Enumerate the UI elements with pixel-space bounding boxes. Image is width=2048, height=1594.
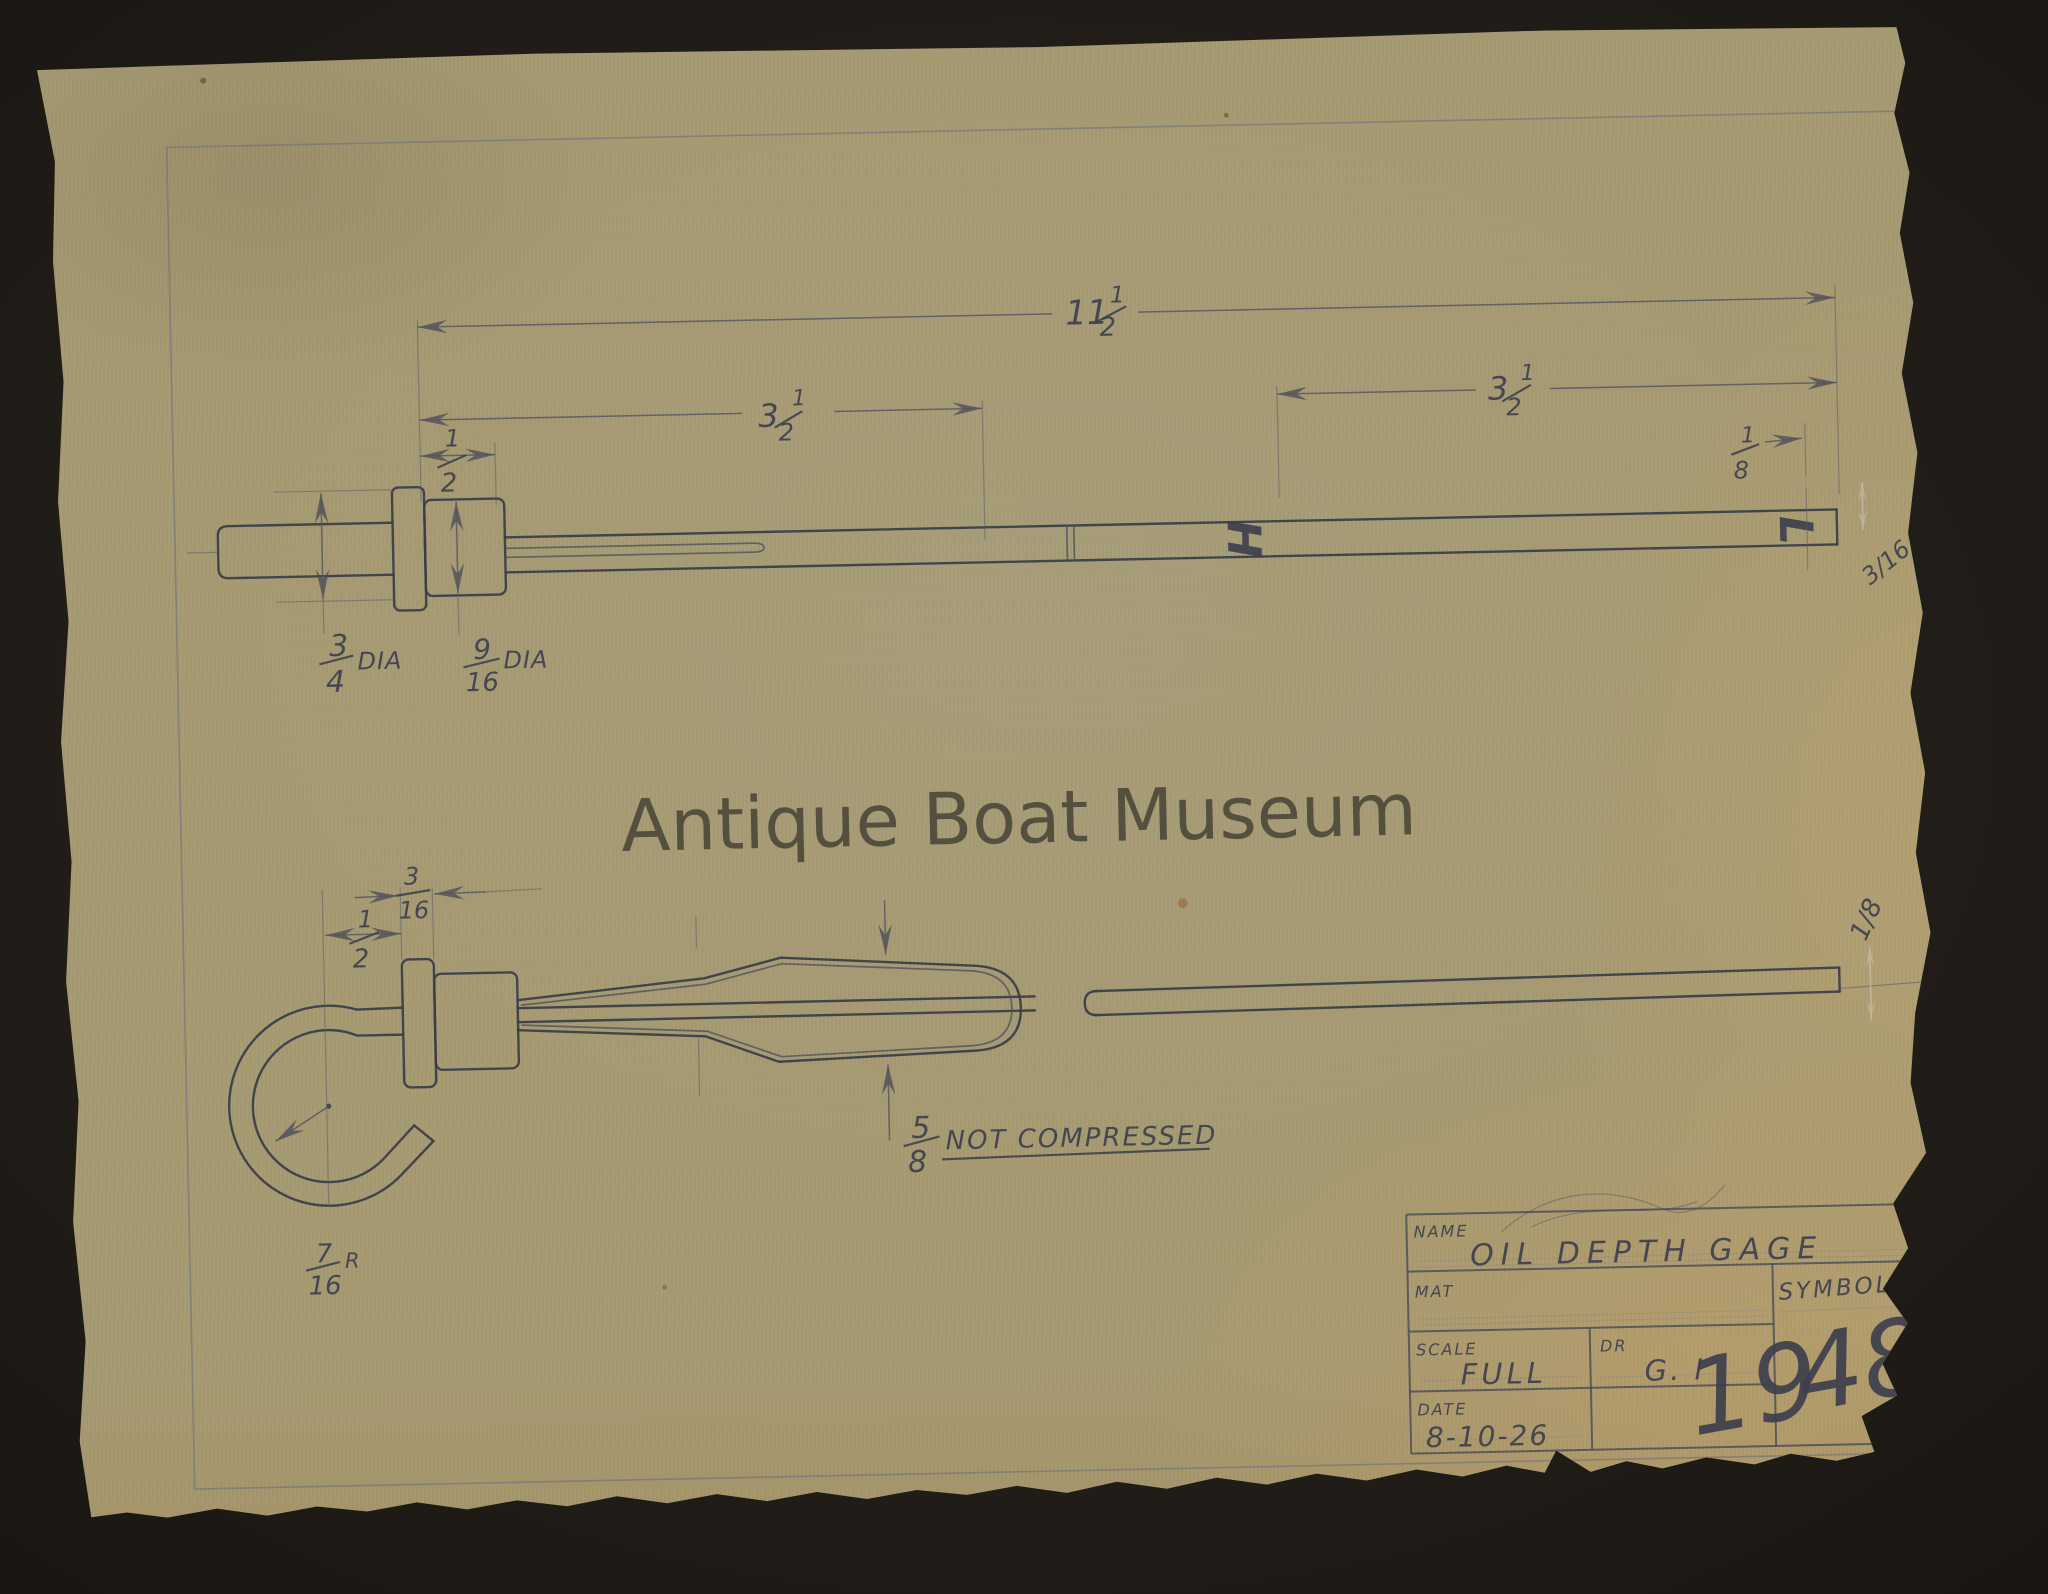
dim-hex-dia: 9 16 DIA xyxy=(456,500,549,699)
svg-text:3: 3 xyxy=(758,397,779,435)
svg-text:2: 2 xyxy=(778,418,794,446)
dim-overall-length: 11 1 2 xyxy=(417,267,1836,357)
svg-text:1: 1 xyxy=(792,386,807,411)
dim-spring: 5 8 NOT COMPRESSED xyxy=(885,894,1219,1181)
top-view: H L 11 1 xyxy=(182,266,1918,704)
svg-text:2: 2 xyxy=(1099,313,1116,343)
title-block: NAME OIL DEPTH GAGE MAT SCALE FULL DR G.… xyxy=(1406,1203,1956,1466)
svg-text:1/8: 1/8 xyxy=(1845,894,1889,944)
svg-text:1: 1 xyxy=(1110,282,1125,308)
stamped-letter-high: H xyxy=(1217,519,1272,559)
dim-tip-width: 1 8 xyxy=(1731,422,1803,484)
svg-text:DIA: DIA xyxy=(357,647,403,676)
white-pencil-top-view: 3/16 xyxy=(1854,481,1916,591)
gage-hex-cap xyxy=(424,498,506,596)
svg-text:OIL DEPTH GAGE: OIL DEPTH GAGE xyxy=(1470,1231,1824,1273)
svg-text:2: 2 xyxy=(352,944,369,974)
title-block-date: DATE 8-10-26 xyxy=(1417,1398,1549,1455)
svg-text:DATE: DATE xyxy=(1417,1399,1467,1419)
svg-text:16: 16 xyxy=(308,1271,342,1302)
dim-cap-width: 1 2 xyxy=(420,424,497,500)
svg-text:8: 8 xyxy=(1733,456,1749,484)
svg-text:8: 8 xyxy=(908,1145,928,1180)
svg-text:H: H xyxy=(1217,519,1272,559)
svg-text:2: 2 xyxy=(1506,393,1522,421)
gage-flange-edge xyxy=(402,959,437,1088)
svg-text:2: 2 xyxy=(440,468,457,498)
svg-text:16: 16 xyxy=(398,896,429,925)
svg-text:DIA: DIA xyxy=(503,645,549,674)
title-block-name: NAME OIL DEPTH GAGE xyxy=(1413,1214,1823,1275)
gage-handle-rod xyxy=(218,523,394,579)
svg-text:1: 1 xyxy=(444,424,460,452)
svg-text:FULL: FULL xyxy=(1460,1356,1547,1392)
title-block-mat: MAT xyxy=(1415,1282,1455,1302)
loop-radius-leader xyxy=(275,1106,330,1141)
dim-right-section: 3 1 2 xyxy=(1276,354,1837,426)
svg-text:4: 4 xyxy=(326,665,346,700)
gage-spring-bulb xyxy=(517,953,1022,1068)
dim-flange-thickness: 3 16 xyxy=(354,860,544,961)
gage-slot xyxy=(505,543,764,557)
svg-text:MAT: MAT xyxy=(1415,1282,1455,1302)
svg-text:48: 48 xyxy=(1786,1293,1938,1437)
paper-stains xyxy=(200,56,1253,1299)
svg-text:16: 16 xyxy=(466,668,500,699)
svg-text:1: 1 xyxy=(1520,361,1535,386)
dim-flange-dia: 3 4 DIA xyxy=(274,490,403,702)
title-block-symbol: SYMBOL 19 48 xyxy=(1675,1271,1940,1461)
drawing-sheet: H L 11 1 xyxy=(37,22,1969,1532)
gage-flange xyxy=(392,487,427,611)
scan-background: H L 11 1 xyxy=(0,0,2048,1594)
svg-text:NAME: NAME xyxy=(1413,1221,1468,1241)
svg-text:3/16: 3/16 xyxy=(1856,535,1915,591)
svg-text:R: R xyxy=(345,1249,360,1273)
svg-text:1: 1 xyxy=(1741,423,1756,448)
symbol-number: 19 48 xyxy=(1676,1293,1939,1460)
gage-wire-tail xyxy=(1084,965,1942,1015)
stamped-letter-low: L xyxy=(1769,515,1824,545)
svg-text:DR: DR xyxy=(1600,1336,1628,1356)
dim-loop-offset: 1 2 xyxy=(325,905,402,976)
svg-text:L: L xyxy=(1769,515,1824,545)
dim-left-section: 3 1 2 xyxy=(419,382,983,454)
svg-text:1: 1 xyxy=(358,905,374,933)
gage-hex-cap-edge xyxy=(434,972,519,1070)
white-pencil-bottom-view: 1/8 xyxy=(1844,894,1891,1021)
bottom-view: 3 16 1 2 7 16 R xyxy=(224,830,1948,1303)
title-block-scale: SCALE FULL xyxy=(1416,1338,1547,1393)
dim-loop-radius: 7 16 R xyxy=(306,1239,361,1302)
svg-text:8-10-26: 8-10-26 xyxy=(1426,1419,1550,1455)
